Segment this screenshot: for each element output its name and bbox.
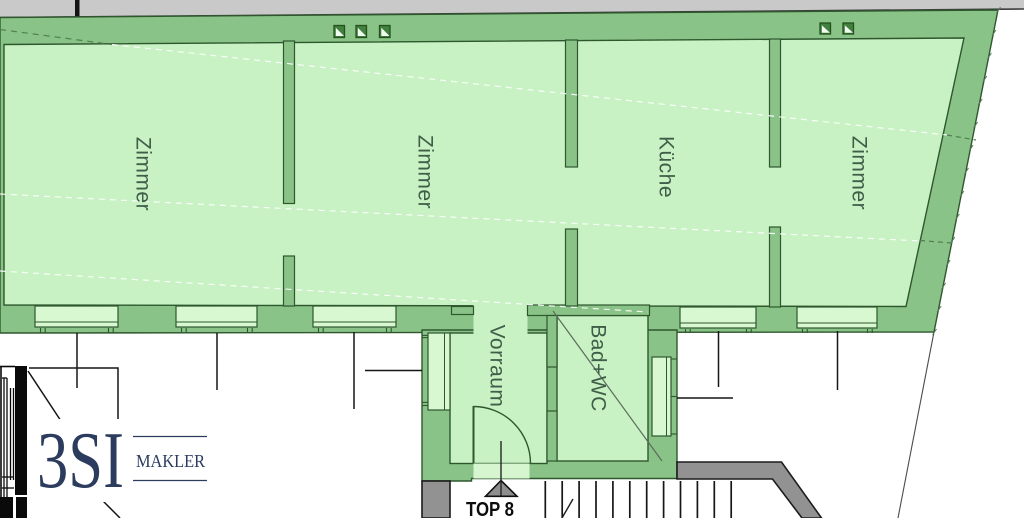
svg-text:TOP 8: TOP 8 xyxy=(466,498,514,518)
svg-text:Zimmer: Zimmer xyxy=(131,137,154,211)
svg-text:Vorraum: Vorraum xyxy=(485,325,508,408)
svg-text:Bad+WC: Bad+WC xyxy=(586,324,609,412)
svg-text:Küche: Küche xyxy=(654,136,677,198)
svg-text:Zimmer: Zimmer xyxy=(847,136,870,210)
svg-text:MAKLER: MAKLER xyxy=(136,451,205,471)
svg-text:Zimmer: Zimmer xyxy=(413,135,436,209)
svg-text:3SI: 3SI xyxy=(37,415,124,505)
